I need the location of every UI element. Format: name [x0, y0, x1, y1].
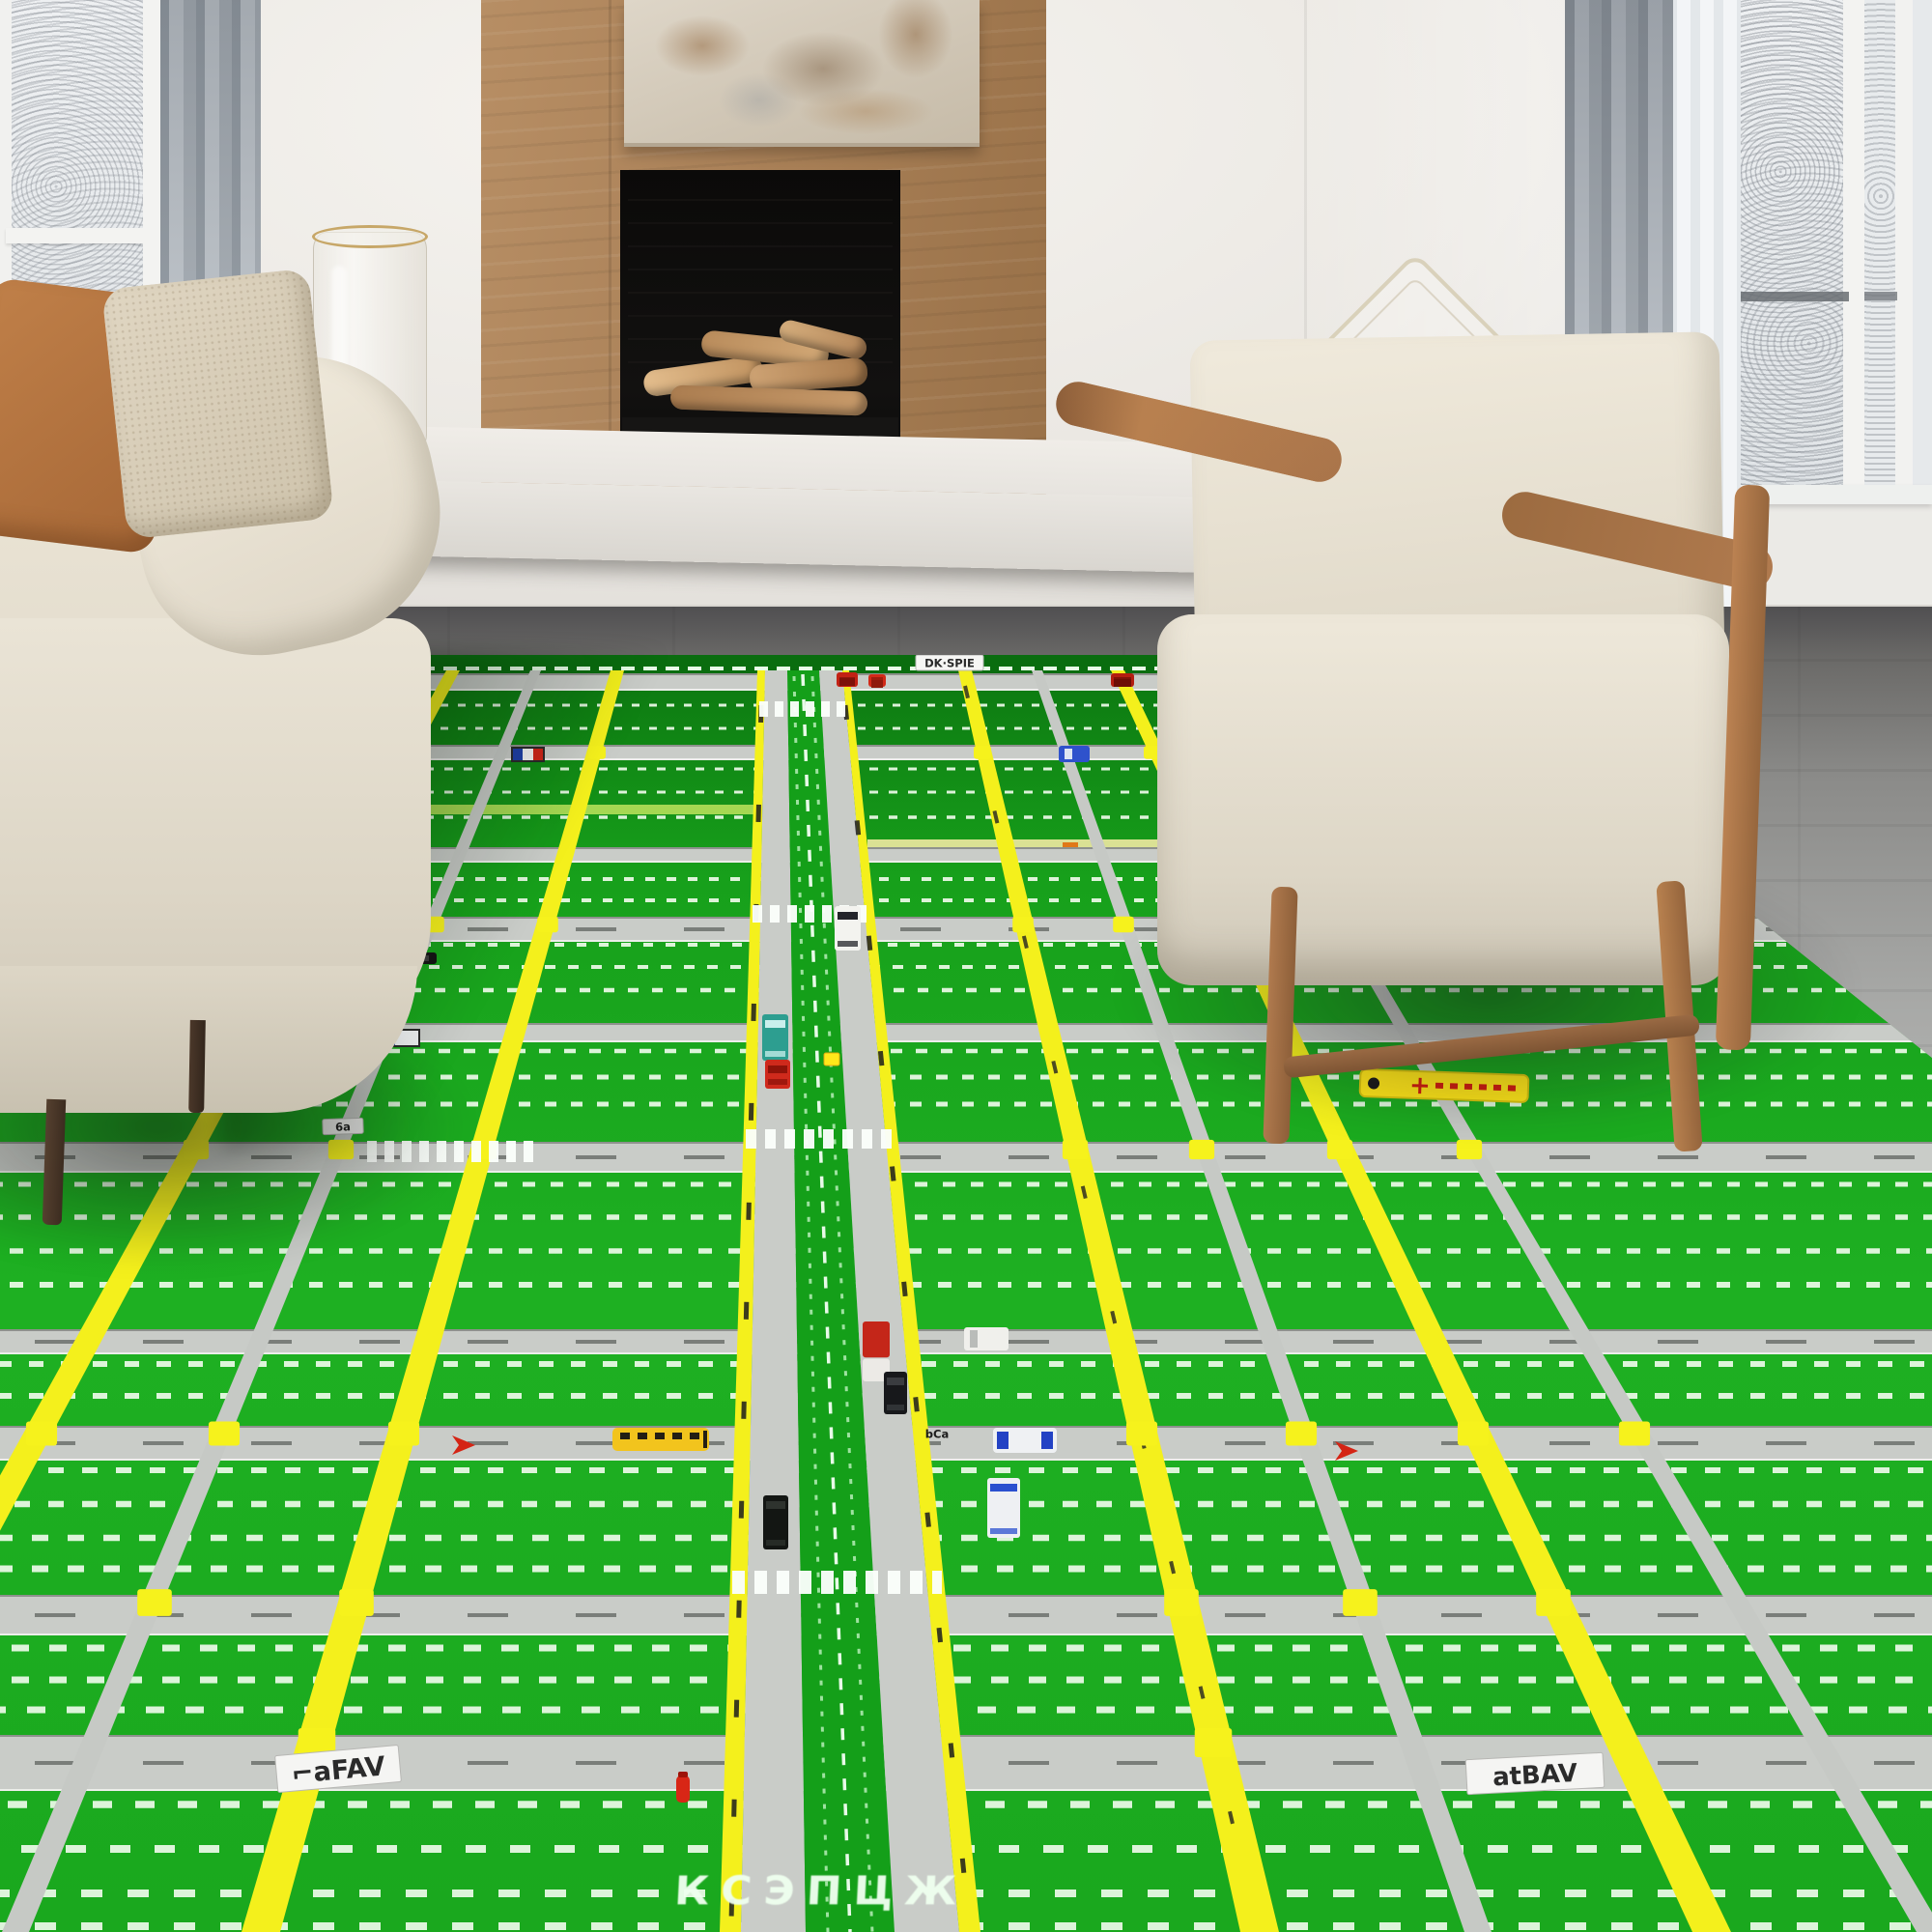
rug-rect [768, 1079, 787, 1085]
rug-rect [765, 1020, 785, 1028]
rug-rect [887, 1405, 904, 1410]
intersection-node [209, 1422, 240, 1446]
intersection-node [537, 917, 558, 932]
toy-vehicle-box [824, 1053, 839, 1065]
rug-rect [523, 748, 533, 761]
intersection-node [1126, 1422, 1157, 1446]
rug-bottom-text: КСЭПЦЖ [579, 1868, 1065, 1921]
fireplace-panel-seam [609, 0, 611, 495]
rug-rect [703, 1431, 707, 1448]
intersection-node [339, 1589, 374, 1616]
intersection-node [1327, 1140, 1352, 1159]
rug-rect [838, 912, 858, 920]
beige-throw-pillow [101, 268, 334, 539]
intersection-node [1536, 1589, 1571, 1616]
intersection-node [388, 1422, 419, 1446]
intersection-node [184, 1140, 209, 1159]
rug-rect [620, 1433, 630, 1439]
rug-rect [1360, 1069, 1529, 1102]
intersection-node [1113, 917, 1134, 932]
rug-rect [655, 1433, 665, 1439]
firewood-logs [636, 309, 889, 415]
rug-rect [766, 1501, 785, 1509]
rug-rect [512, 748, 523, 761]
rug-rect [1114, 677, 1131, 683]
vase-gold-rim [312, 225, 428, 248]
toy-vehicle-car [837, 672, 858, 687]
right-window-sash [1735, 292, 1849, 301]
toy-vehicle-car [763, 1495, 788, 1549]
rug-rect [824, 1053, 839, 1065]
intersection-node [1012, 917, 1034, 932]
rug-rect [1041, 1432, 1053, 1449]
rug-rect [1059, 746, 1090, 762]
rug-sign: DK·SPIE [916, 655, 983, 670]
right-window-glass [1735, 0, 1849, 491]
intersection-node [1343, 1589, 1378, 1616]
sign-text: DK·SPIE [924, 656, 975, 669]
living-room-photo: DK·SPIE1I36aE30LEbCa⌐aFAVatBAV+ КСЭПЦЖ [0, 0, 1932, 1932]
abstract-map-artwork [624, 0, 980, 147]
rug-rect [990, 1528, 1017, 1534]
armchair-seat [1157, 614, 1729, 985]
sign-text: bCa [925, 1427, 949, 1440]
intersection-node [137, 1589, 172, 1616]
rug-rect [838, 941, 858, 947]
toy-vehicle-hcar [964, 1327, 1009, 1350]
rug-rect [638, 1433, 647, 1439]
rug-rect [871, 677, 883, 683]
rug-sign: bCa [925, 1427, 949, 1440]
rug-rect [765, 1051, 785, 1057]
right-window-frame [1895, 0, 1913, 491]
intersection-node [1458, 1422, 1489, 1446]
toy-vehicle-police [993, 1428, 1057, 1453]
toy-vehicle-car [762, 1014, 788, 1061]
toy-vehicle-car [1111, 673, 1134, 687]
toy-vehicle-hcar [1059, 746, 1090, 762]
rug-sign: atBAV [1465, 1752, 1605, 1794]
rug-rect [970, 1330, 978, 1348]
toy-vehicle-car [835, 906, 861, 951]
intersection-node [1164, 1589, 1199, 1616]
log [670, 384, 868, 415]
intersection-node [1457, 1140, 1482, 1159]
intersection-node [1189, 1140, 1214, 1159]
sign-text: atBAV [1492, 1759, 1577, 1793]
rug-rect [768, 1065, 787, 1073]
toy-vehicle-bus [612, 1428, 709, 1451]
intersection-node [1286, 1422, 1317, 1446]
fire-hydrant [676, 1776, 690, 1803]
intersection-node [1063, 1140, 1088, 1159]
right-window-glass-2 [1864, 0, 1897, 491]
rug-rect [863, 1321, 890, 1357]
rug-text: + [1409, 1071, 1432, 1101]
intersection-node [1195, 1728, 1233, 1757]
rug-rect [672, 1433, 682, 1439]
right-window-mullion [1843, 0, 1864, 491]
toy-vehicle-car [987, 1478, 1020, 1538]
rug-rect [839, 677, 855, 683]
intersection-node [1619, 1422, 1650, 1446]
hydrant-cap [678, 1772, 688, 1777]
right-window-glass-3 [1911, 0, 1932, 491]
toy-vehicle-car [868, 674, 886, 688]
sofa-leg [188, 1020, 206, 1113]
toy-vehicle-car [884, 1372, 907, 1414]
rug-rect [690, 1433, 699, 1439]
toy-vehicle-car [765, 1060, 790, 1089]
intersection-node [328, 1140, 354, 1159]
intersection-node [974, 746, 991, 759]
right-window-sash-2 [1864, 292, 1897, 300]
intersection-node [588, 746, 606, 759]
rug-rect [766, 1540, 785, 1546]
sign-text: 6a [335, 1120, 351, 1134]
rug-rect [887, 1378, 904, 1385]
rug-sign: 6a [323, 1118, 364, 1134]
flag-france [512, 748, 544, 761]
intersection-node [26, 1422, 57, 1446]
rug-rect [533, 748, 544, 761]
rug-rect [990, 1484, 1017, 1492]
rug-rect [997, 1432, 1009, 1449]
left-window-sash [6, 228, 155, 243]
rug-rect [1065, 749, 1072, 759]
